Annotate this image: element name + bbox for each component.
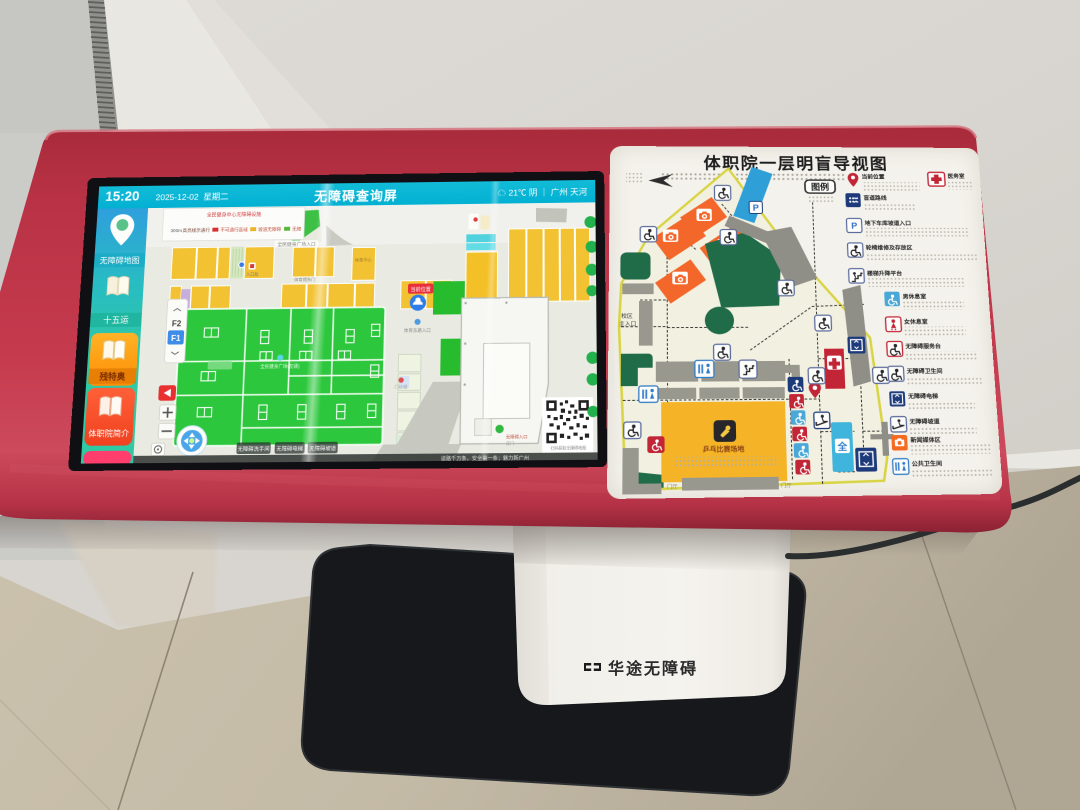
svg-text:﹀: ﹀ bbox=[170, 351, 179, 361]
svg-text:正门: 正门 bbox=[506, 439, 515, 446]
svg-text:F2: F2 bbox=[172, 319, 182, 329]
svg-text:女休息室: 女休息室 bbox=[904, 318, 928, 326]
svg-text:300m: 300m bbox=[170, 228, 182, 233]
svg-text:医务室: 医务室 bbox=[947, 172, 965, 180]
svg-text:无障碍卫生间: 无障碍卫生间 bbox=[905, 367, 943, 375]
svg-text:公共卫生间: 公共卫生间 bbox=[911, 459, 942, 468]
svg-text:无障碍坡道: 无障碍坡道 bbox=[908, 417, 940, 426]
svg-text:华途无障碍: 华途无障碍 bbox=[608, 659, 698, 678]
svg-text:P: P bbox=[851, 221, 858, 231]
svg-text:F1: F1 bbox=[171, 334, 182, 344]
svg-text:门诊部: 门诊部 bbox=[394, 383, 407, 390]
svg-text:扫码获取无障碍地图: 扫码获取无障碍地图 bbox=[551, 445, 587, 451]
svg-text:乒乓比赛场地: 乒乓比赛场地 bbox=[703, 444, 745, 454]
svg-text:体育中心: 体育中心 bbox=[355, 256, 372, 262]
svg-text:新闻媒体区: 新闻媒体区 bbox=[910, 435, 941, 444]
svg-text:全: 全 bbox=[836, 440, 847, 452]
svg-text:男休息室: 男休息室 bbox=[902, 292, 926, 300]
svg-text:地下车库坡道入口: 地下车库坡道入口 bbox=[864, 219, 911, 227]
svg-text:P: P bbox=[753, 203, 759, 213]
svg-text:无障碍服务台: 无障碍服务台 bbox=[904, 342, 941, 350]
svg-text:无障碍洗手间: 无障碍洗手间 bbox=[237, 445, 269, 453]
svg-text:盲道路线: 盲道路线 bbox=[863, 194, 887, 202]
svg-text:无障碍入口: 无障碍入口 bbox=[506, 433, 528, 440]
svg-text:主入口: 主入口 bbox=[619, 320, 636, 328]
svg-text:无障碍电梯: 无障碍电梯 bbox=[276, 445, 303, 453]
svg-text:楼梯升降平台: 楼梯升降平台 bbox=[867, 269, 903, 277]
svg-text:︿: ︿ bbox=[173, 303, 182, 312]
svg-text:校区: 校区 bbox=[621, 312, 633, 320]
svg-text:图例: 图例 bbox=[811, 181, 830, 192]
svg-text:当前位置: 当前位置 bbox=[861, 173, 885, 181]
svg-text:轮椅维修及存放区: 轮椅维修及存放区 bbox=[866, 244, 913, 252]
svg-text:无障碍电梯: 无障碍电梯 bbox=[907, 392, 939, 401]
svg-text:入口处: 入口处 bbox=[246, 270, 259, 276]
